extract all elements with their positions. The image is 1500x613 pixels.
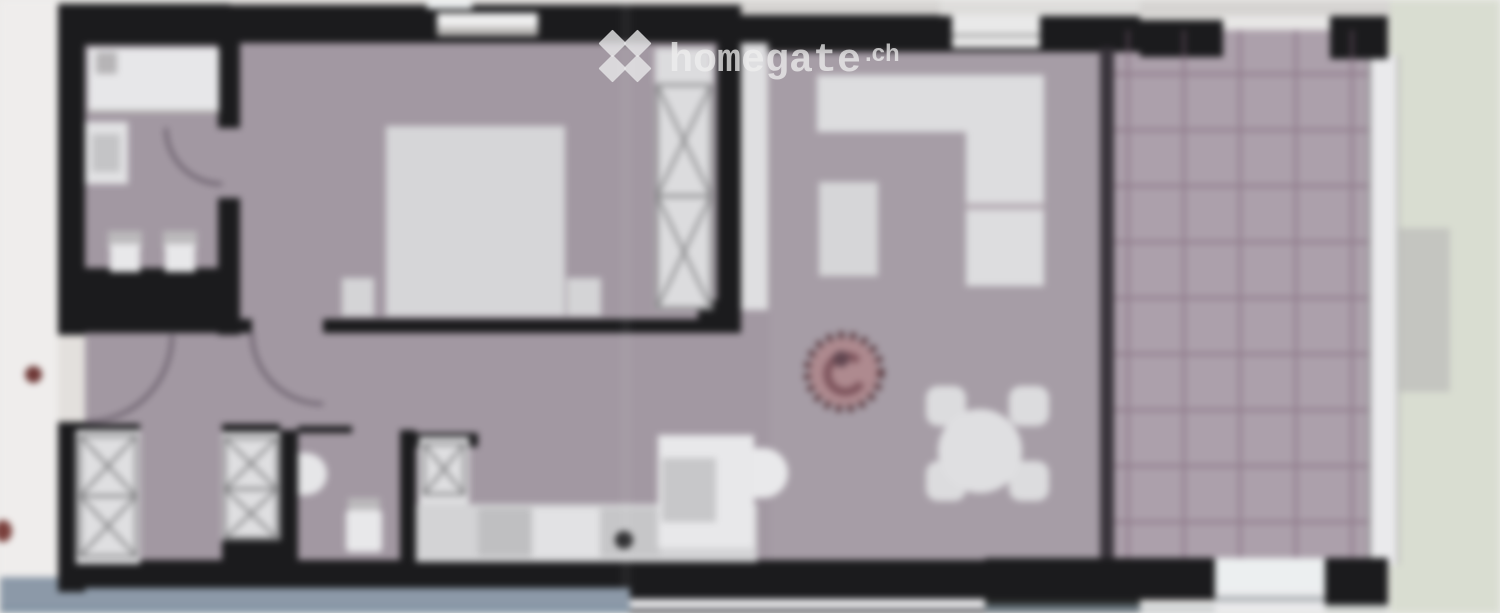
svg-text:homegate: homegate: [669, 39, 861, 84]
svg-text:.ch: .ch: [865, 40, 900, 67]
